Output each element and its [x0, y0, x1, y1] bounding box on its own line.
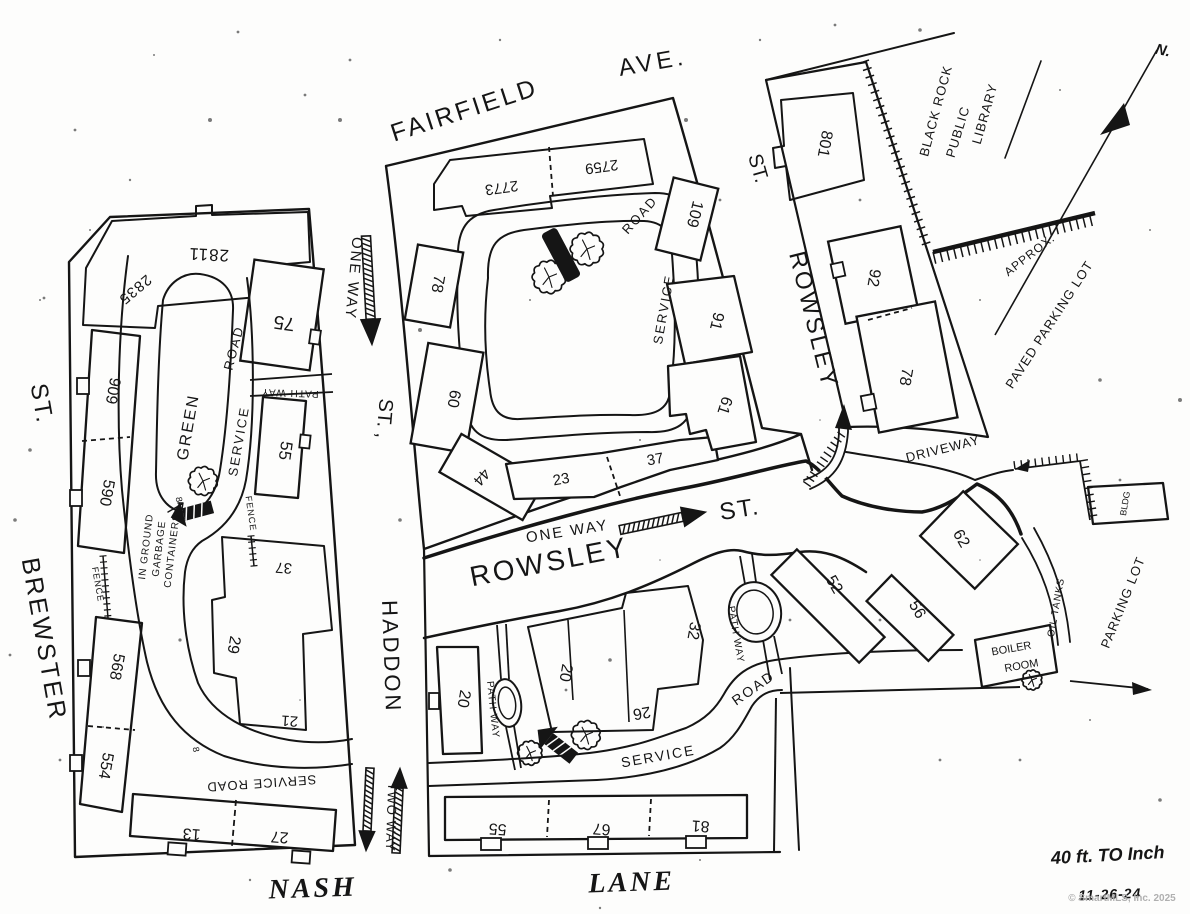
svg-text:78: 78 [895, 367, 915, 388]
svg-text:LANE: LANE [587, 866, 676, 900]
svg-text:HADDON: HADDON [377, 600, 406, 714]
svg-text:75: 75 [272, 311, 296, 335]
svg-text:ST. ,: ST. , [371, 398, 396, 440]
svg-text:PATH WAY: PATH WAY [261, 386, 319, 399]
svg-text:2811: 2811 [188, 244, 230, 265]
svg-text:60: 60 [443, 389, 463, 410]
svg-text:32: 32 [683, 621, 703, 642]
svg-text:TWO WAY: TWO WAY [383, 782, 400, 852]
svg-text:55: 55 [275, 440, 296, 461]
svg-text:55: 55 [488, 819, 507, 837]
svg-text:27: 27 [270, 827, 289, 845]
svg-text:26: 26 [631, 703, 652, 723]
svg-text:21: 21 [281, 711, 299, 729]
svg-text:92: 92 [863, 268, 883, 289]
svg-text:© SmartMLS, Inc. 2025: © SmartMLS, Inc. 2025 [1068, 893, 1176, 904]
svg-text:13: 13 [182, 824, 201, 842]
svg-text:20: 20 [555, 663, 575, 684]
svg-text:20: 20 [453, 689, 473, 710]
svg-text:37: 37 [646, 450, 665, 470]
svg-text:78: 78 [427, 274, 447, 295]
svg-text:67: 67 [592, 819, 611, 837]
svg-text:NASH: NASH [267, 871, 357, 905]
svg-text:29: 29 [223, 635, 243, 656]
svg-text:23: 23 [552, 470, 571, 490]
svg-text:81: 81 [691, 816, 710, 834]
svg-text:37: 37 [275, 558, 293, 576]
